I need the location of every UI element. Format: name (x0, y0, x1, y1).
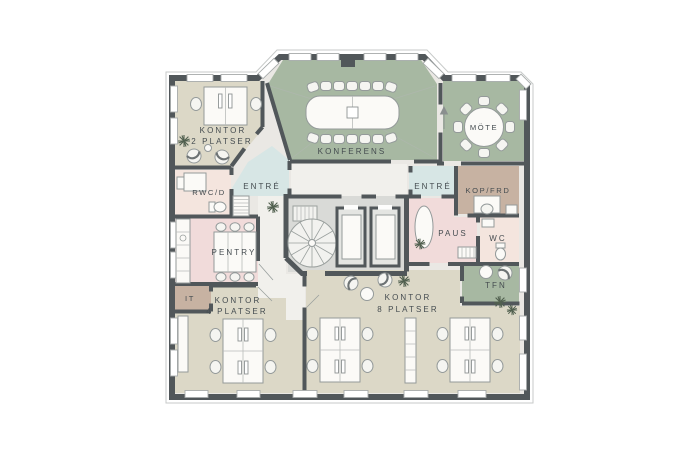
elevator-icon (337, 205, 365, 266)
floor-plan-page: KONTOR 2 PLATSER KONFERENS MÖTE ENTRÉ EN… (0, 0, 700, 462)
vestibule-floor (291, 164, 407, 196)
room-label-entre-left: ENTRÉ (243, 182, 281, 191)
plant-icon (398, 275, 410, 287)
room-label-entre-right: ENTRÉ (414, 182, 452, 191)
plant-icon (267, 201, 279, 213)
stair-core (288, 205, 399, 267)
room-label-pentry: PENTRY (212, 248, 257, 257)
room-label-kontor2-size: 2 PLATSER (191, 137, 252, 146)
floor-plan-svg: KONTOR 2 PLATSER KONFERENS MÖTE ENTRÉ EN… (0, 0, 700, 462)
room-label-wc: WC (489, 234, 507, 243)
corridor-center-floor (286, 274, 305, 320)
chair (251, 98, 262, 111)
stairs-down-icon (233, 196, 249, 216)
chair (191, 98, 202, 111)
shelf-column (405, 318, 416, 383)
room-label-kontor4-name: KONTOR (215, 296, 262, 305)
corridor-left-floor (258, 196, 286, 298)
room-label-kontor2-name: KONTOR (200, 126, 247, 135)
plant-icon (415, 239, 426, 250)
room-label-kontor4-size: 4 PLATSER (206, 307, 267, 316)
room-label-it: IT (185, 294, 195, 303)
room-label-kopfrd: KOP/FRD (466, 186, 511, 195)
room-label-kontor8-name: KONTOR (385, 293, 432, 302)
wall-pier (341, 60, 355, 67)
room-label-rwcd: RWC/D (192, 188, 226, 197)
room-label-mote: MÖTE (470, 123, 498, 132)
plant-icon (494, 296, 506, 308)
elevator-icon (371, 205, 399, 266)
room-label-kontor8-size: 8 PLATSER (377, 305, 438, 314)
room-label-paus: PAUS (438, 229, 468, 238)
room-entre-right-floor (409, 166, 454, 196)
plant-icon (507, 305, 517, 315)
room-label-tfn: TFN (485, 281, 507, 290)
kontor8-furniture (307, 318, 503, 383)
shelf (458, 247, 476, 258)
plant-icon (178, 135, 190, 147)
spiral-stair-icon (288, 219, 336, 267)
room-label-konferens: KONFERENS (318, 147, 387, 156)
